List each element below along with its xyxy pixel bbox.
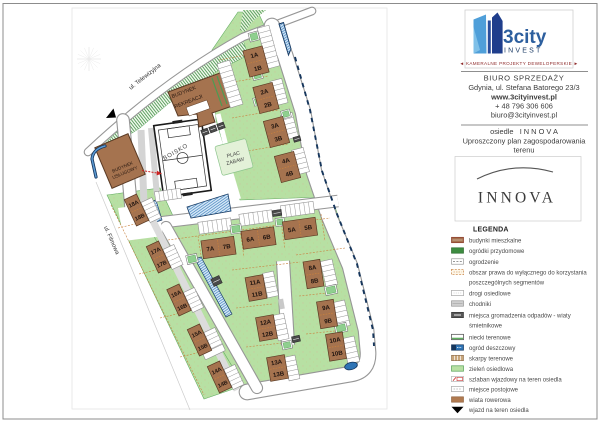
svg-text:osiedle I N N O V A: osiedle I N N O V A bbox=[490, 127, 558, 136]
svg-text:poszczególnych segmentów: poszczególnych segmentów bbox=[469, 281, 545, 287]
svg-text:drogi osiedlowe: drogi osiedlowe bbox=[469, 291, 511, 297]
svg-text:◄ KAMERALNE PROJEKTY DEWELOPER: ◄ KAMERALNE PROJEKTY DEWELOPERSKIE ► bbox=[459, 61, 578, 66]
svg-text:miejsce postojowe: miejsce postojowe bbox=[469, 387, 519, 393]
svg-text:LEGENDA: LEGENDA bbox=[473, 227, 509, 234]
svg-text:wiata rowerowa: wiata rowerowa bbox=[468, 398, 511, 404]
svg-text:szlaban wjazdowy na teren osie: szlaban wjazdowy na teren osiedla bbox=[469, 377, 562, 383]
svg-text:INNOVA: INNOVA bbox=[478, 190, 556, 207]
svg-text:BIURO SPRZEDAŻY: BIURO SPRZEDAŻY bbox=[484, 74, 565, 83]
svg-text:ogród deszczowy: ogród deszczowy bbox=[469, 346, 515, 352]
svg-text:niecki terenowe: niecki terenowe bbox=[469, 335, 511, 341]
svg-text:www.3cityinvest.pl: www.3cityinvest.pl bbox=[490, 93, 557, 102]
svg-text:ogródki przydomowe: ogródki przydomowe bbox=[469, 249, 525, 255]
svg-text:obszar prawa do wyłącznego do: obszar prawa do wyłącznego do korzystani… bbox=[469, 270, 587, 276]
svg-text:3city: 3city bbox=[503, 27, 547, 48]
svg-text:terenu: terenu bbox=[514, 146, 535, 155]
svg-text:INVEST: INVEST bbox=[504, 48, 542, 55]
svg-text:Gdynia, ul. Stefana Batorego 2: Gdynia, ul. Stefana Batorego 23/3 bbox=[468, 83, 579, 92]
svg-text:biuro@3cityinvest.pl: biuro@3cityinvest.pl bbox=[491, 111, 558, 120]
svg-text:budynki mieszkalne: budynki mieszkalne bbox=[469, 238, 522, 244]
svg-text:miejsca gromadzenia odpadów -: miejsca gromadzenia odpadów - wiaty bbox=[469, 313, 571, 319]
svg-text:skarpy terenowe: skarpy terenowe bbox=[469, 356, 514, 362]
svg-text:zieleń osiedlowa: zieleń osiedlowa bbox=[469, 367, 514, 373]
svg-text:chodniki: chodniki bbox=[469, 302, 491, 308]
svg-text:+ 48 796 306 606: + 48 796 306 606 bbox=[495, 102, 553, 111]
svg-text:Uproszczony plan zagospodarowa: Uproszczony plan zagospodarowania bbox=[463, 137, 587, 146]
svg-text:śmietnikowe: śmietnikowe bbox=[469, 324, 503, 330]
svg-text:ogrodzenie: ogrodzenie bbox=[469, 260, 499, 266]
svg-text:wjazd na teren osiedla: wjazd na teren osiedla bbox=[468, 408, 529, 414]
